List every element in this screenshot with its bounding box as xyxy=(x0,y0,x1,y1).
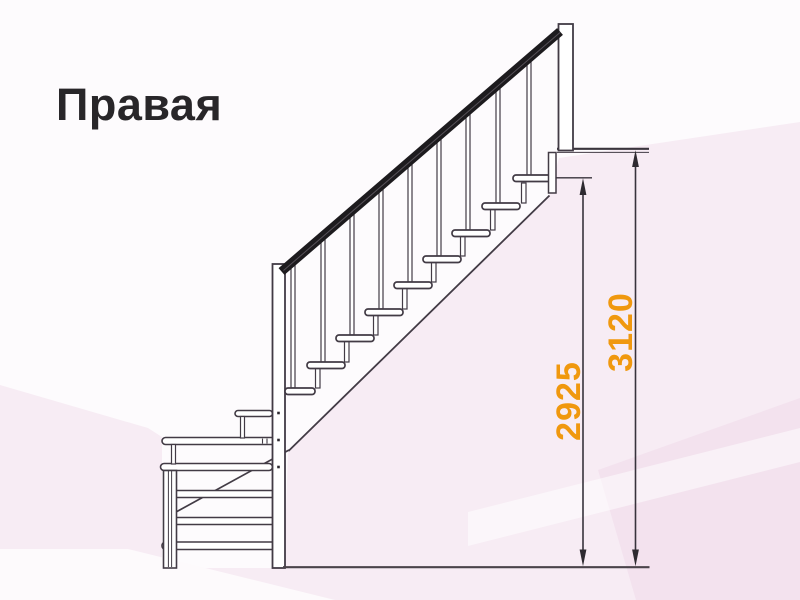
floor-fascia xyxy=(549,153,557,194)
post-bolt xyxy=(277,412,280,415)
winder-stringer-line xyxy=(172,450,290,515)
tread xyxy=(423,256,461,263)
riser-support xyxy=(491,209,496,230)
riser-support xyxy=(345,341,350,362)
baluster xyxy=(527,59,531,177)
winder-tread xyxy=(162,542,285,550)
winder-tread xyxy=(161,464,273,471)
left-post xyxy=(164,471,177,569)
main-flight xyxy=(285,59,553,451)
baluster xyxy=(437,137,441,256)
post-bolt xyxy=(277,466,280,469)
winder-tread xyxy=(162,438,276,445)
riser-support xyxy=(432,262,437,282)
riser-support xyxy=(374,315,379,335)
tread xyxy=(365,309,403,316)
baluster xyxy=(466,112,470,230)
page-title: Правая xyxy=(56,82,222,127)
top-newel-post xyxy=(559,24,574,151)
winder-tread xyxy=(164,518,285,525)
dimension-arrow-up xyxy=(580,178,587,195)
dimension-label-total-height: 3120 xyxy=(604,292,638,372)
tread xyxy=(482,203,520,210)
winder-support xyxy=(172,445,176,465)
lower-newel-post xyxy=(273,264,286,568)
baluster xyxy=(291,263,295,388)
winder-small-tread-support xyxy=(241,417,245,439)
baluster xyxy=(496,86,500,203)
dimension-arrow-down xyxy=(632,550,639,567)
dimension-arrow-down xyxy=(580,550,587,567)
riser-support xyxy=(403,288,408,309)
baluster xyxy=(321,237,325,362)
winder-small-tread xyxy=(235,411,273,417)
handrail-bar xyxy=(282,32,561,272)
tread xyxy=(452,230,490,237)
tread xyxy=(336,335,374,342)
post-bolt xyxy=(277,439,280,442)
winder-tread xyxy=(164,491,285,498)
dimension-label-inner-height: 2925 xyxy=(552,361,586,441)
handrail xyxy=(282,32,561,272)
staircase-diagram-page: Правая 2925 3120 xyxy=(0,0,800,600)
tread xyxy=(285,388,315,395)
baluster xyxy=(379,187,383,309)
baluster xyxy=(350,212,354,335)
riser-support xyxy=(522,183,527,203)
landing-tread xyxy=(513,175,553,182)
tread xyxy=(307,362,345,369)
upper-landing xyxy=(549,24,650,193)
tread xyxy=(394,282,432,289)
winder-section xyxy=(161,411,290,569)
riser-support xyxy=(316,368,321,388)
handrail-sheen xyxy=(284,33,561,271)
riser-support xyxy=(461,236,466,256)
newel-post xyxy=(273,264,286,568)
baluster xyxy=(408,162,412,282)
